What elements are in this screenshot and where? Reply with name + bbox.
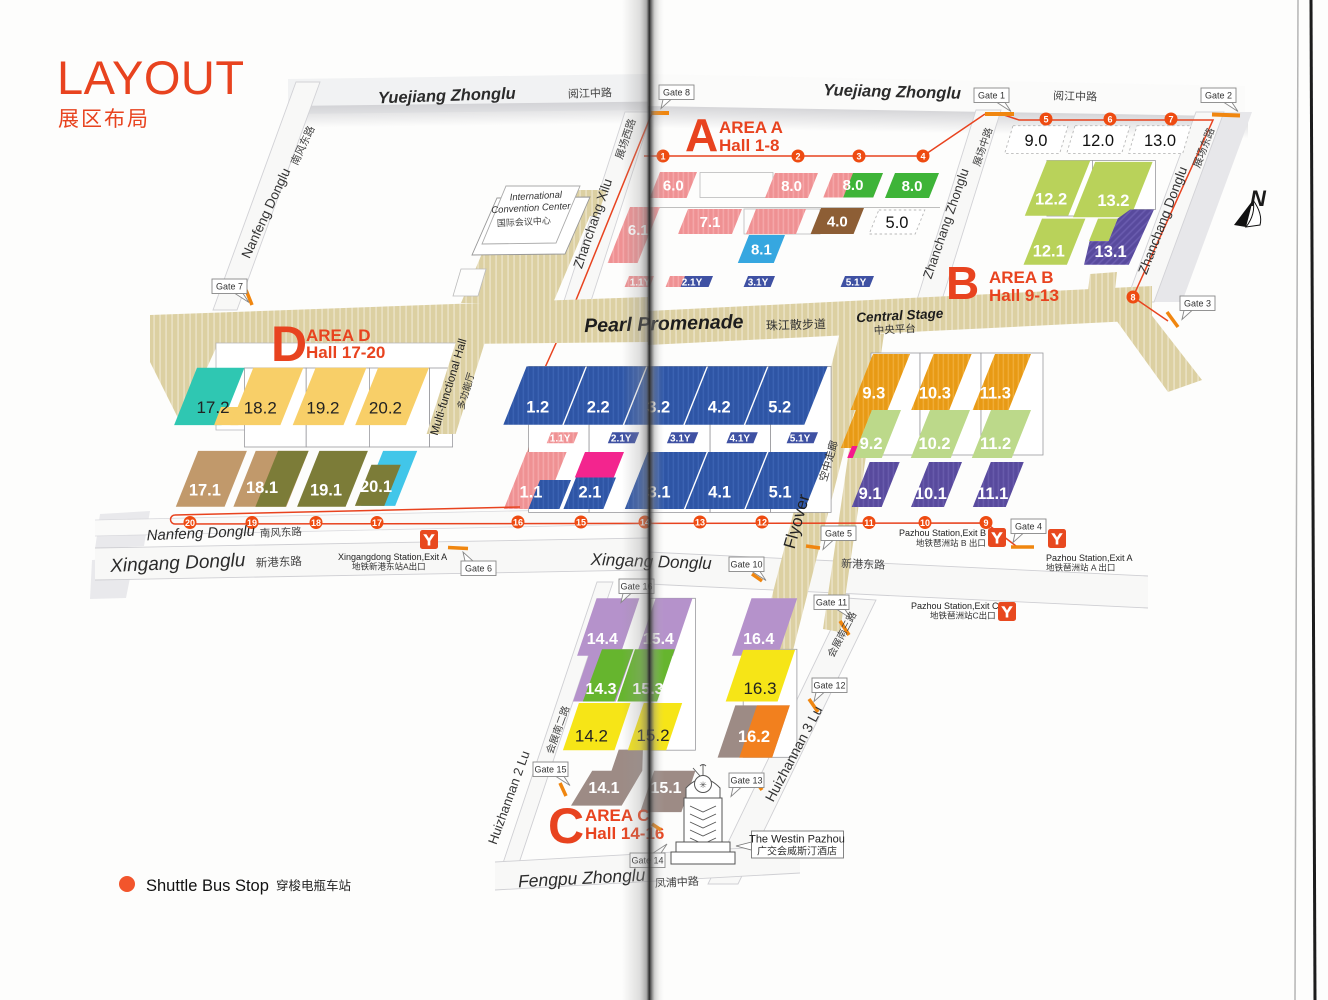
svg-text:13: 13 <box>695 517 705 527</box>
svg-text:16.2: 16.2 <box>738 728 770 746</box>
svg-text:Gate 1: Gate 1 <box>978 91 1005 101</box>
svg-text:地铁琶洲站C出口: 地铁琶洲站C出口 <box>930 611 996 621</box>
svg-text:4.1: 4.1 <box>708 483 731 501</box>
svg-text:Pazhou Station,Exit B: Pazhou Station,Exit B <box>899 528 986 538</box>
svg-text:5.1Y: 5.1Y <box>846 278 867 289</box>
svg-text:10: 10 <box>920 518 930 528</box>
svg-text:14.3: 14.3 <box>585 681 616 698</box>
svg-text:广交会威斯汀酒店: 广交会威斯汀酒店 <box>757 845 837 858</box>
svg-text:16.3: 16.3 <box>743 679 776 698</box>
svg-text:8: 8 <box>1130 292 1135 302</box>
svg-text:Gate 6: Gate 6 <box>465 564 492 574</box>
svg-text:14.4: 14.4 <box>587 631 618 648</box>
svg-text:Yuejiang Zhonglu: Yuejiang Zhonglu <box>823 81 961 103</box>
svg-text:18.1: 18.1 <box>246 479 278 497</box>
svg-text:C: C <box>548 798 584 854</box>
svg-text:LAYOUT: LAYOUT <box>57 51 245 104</box>
svg-text:Hall 9-13: Hall 9-13 <box>989 286 1059 305</box>
svg-text:Xingangdong Station,Exit A: Xingangdong Station,Exit A <box>338 552 447 562</box>
svg-text:8.0: 8.0 <box>902 178 923 195</box>
svg-text:8.0: 8.0 <box>843 177 864 194</box>
svg-text:7: 7 <box>1168 114 1173 124</box>
svg-text:1.1Y: 1.1Y <box>550 434 571 445</box>
svg-text:2.1Y: 2.1Y <box>682 278 703 289</box>
svg-text:2.2: 2.2 <box>587 399 610 417</box>
svg-text:穿梭电瓶车站: 穿梭电瓶车站 <box>276 878 351 893</box>
svg-text:5: 5 <box>1043 114 1048 124</box>
svg-text:13.0: 13.0 <box>1144 132 1176 150</box>
svg-text:15: 15 <box>576 517 586 527</box>
svg-text:17.1: 17.1 <box>189 481 221 499</box>
svg-text:✳: ✳ <box>699 780 707 790</box>
svg-text:11.1: 11.1 <box>977 485 1008 503</box>
svg-text:13.1: 13.1 <box>1095 243 1127 261</box>
svg-text:Gate 8: Gate 8 <box>663 88 690 98</box>
svg-text:3: 3 <box>856 151 861 161</box>
svg-text:20.2: 20.2 <box>369 399 402 418</box>
svg-text:Gate 4: Gate 4 <box>1015 522 1042 532</box>
svg-text:8.0: 8.0 <box>781 178 802 195</box>
svg-text:17.2: 17.2 <box>196 398 229 417</box>
svg-text:9.3: 9.3 <box>862 385 885 403</box>
svg-text:19.1: 19.1 <box>310 481 342 499</box>
svg-text:9.2: 9.2 <box>860 435 883 453</box>
svg-text:地铁琶洲站 A 出口: 地铁琶洲站 A 出口 <box>1046 563 1115 573</box>
svg-text:Gate 3: Gate 3 <box>1184 299 1211 309</box>
svg-text:Gate 7: Gate 7 <box>216 282 243 292</box>
svg-text:1.2: 1.2 <box>526 399 549 417</box>
svg-text:4.2: 4.2 <box>708 399 731 417</box>
svg-text:Hall 1-8: Hall 1-8 <box>719 136 779 155</box>
svg-text:10.2: 10.2 <box>918 435 950 453</box>
svg-text:7.1: 7.1 <box>700 214 721 231</box>
svg-text:Gate 11: Gate 11 <box>816 598 847 608</box>
svg-text:Pazhou Station,Exit C: Pazhou Station,Exit C <box>911 601 999 611</box>
svg-text:14.2: 14.2 <box>575 727 608 746</box>
svg-text:3.1Y: 3.1Y <box>670 434 691 445</box>
svg-text:阅江中路: 阅江中路 <box>568 86 612 101</box>
svg-text:阅江中路: 阅江中路 <box>1053 89 1097 103</box>
svg-text:4: 4 <box>920 151 925 161</box>
svg-text:13.2: 13.2 <box>1097 192 1129 210</box>
svg-text:Gate 15: Gate 15 <box>534 765 566 775</box>
svg-text:19.2: 19.2 <box>306 399 339 418</box>
svg-text:南风东路: 南风东路 <box>260 525 303 540</box>
svg-text:Gate 10: Gate 10 <box>730 560 762 570</box>
svg-text:12: 12 <box>757 517 767 527</box>
svg-text:Pazhou Station,Exit A: Pazhou Station,Exit A <box>1046 553 1133 563</box>
svg-text:地铁琶洲站 B 出口: 地铁琶洲站 B 出口 <box>916 538 986 548</box>
svg-text:12.2: 12.2 <box>1035 191 1067 209</box>
svg-text:6.0: 6.0 <box>663 177 684 194</box>
svg-text:12.0: 12.0 <box>1082 132 1114 150</box>
svg-text:18.2: 18.2 <box>244 399 277 418</box>
svg-text:18: 18 <box>311 518 321 528</box>
svg-text:3.1Y: 3.1Y <box>748 278 769 289</box>
svg-text:Hall 17-20: Hall 17-20 <box>306 343 385 362</box>
svg-text:Gate 12: Gate 12 <box>813 681 845 691</box>
svg-text:14.1: 14.1 <box>588 780 619 797</box>
svg-text:珠江散步道: 珠江散步道 <box>766 316 826 333</box>
svg-text:展区布局: 展区布局 <box>58 108 150 131</box>
svg-text:2.1: 2.1 <box>579 484 602 502</box>
svg-text:The Westin Pazhou: The Westin Pazhou <box>749 834 845 846</box>
svg-text:地铁新港东站A出口: 地铁新港东站A出口 <box>352 562 426 572</box>
svg-text:12.1: 12.1 <box>1033 242 1065 260</box>
svg-text:16.4: 16.4 <box>743 631 774 648</box>
svg-text:AREA A: AREA A <box>719 118 783 137</box>
svg-text:16: 16 <box>513 517 523 527</box>
svg-text:5.2: 5.2 <box>768 399 791 417</box>
svg-text:5.1Y: 5.1Y <box>790 434 811 445</box>
svg-text:A: A <box>685 109 718 161</box>
svg-text:6: 6 <box>1107 114 1112 124</box>
svg-text:新港东路: 新港东路 <box>841 556 885 572</box>
svg-text:8.1: 8.1 <box>751 241 772 258</box>
svg-text:9: 9 <box>983 518 988 528</box>
svg-text:Gate 2: Gate 2 <box>1205 91 1232 101</box>
svg-text:4.1Y: 4.1Y <box>730 434 751 445</box>
svg-text:9.1: 9.1 <box>859 485 882 503</box>
svg-text:B: B <box>946 257 979 309</box>
svg-text:10.3: 10.3 <box>919 385 951 403</box>
svg-text:10.1: 10.1 <box>915 485 947 503</box>
svg-text:AREA B: AREA B <box>989 268 1054 287</box>
svg-text:4.0: 4.0 <box>827 213 848 230</box>
svg-text:11.3: 11.3 <box>980 385 1011 403</box>
svg-text:11: 11 <box>864 518 874 528</box>
svg-text:5.1: 5.1 <box>769 483 792 501</box>
svg-text:9.0: 9.0 <box>1025 132 1048 150</box>
svg-text:20.1: 20.1 <box>360 478 392 496</box>
svg-text:11.2: 11.2 <box>980 435 1011 453</box>
svg-text:Shuttle Bus Stop: Shuttle Bus Stop <box>146 877 269 895</box>
svg-text:Gate 13: Gate 13 <box>730 776 762 786</box>
svg-text:17: 17 <box>372 518 382 528</box>
svg-text:D: D <box>271 316 307 372</box>
svg-text:中央平台: 中央平台 <box>874 322 917 337</box>
svg-text:1.1: 1.1 <box>520 484 543 502</box>
svg-text:2: 2 <box>795 151 800 161</box>
svg-text:N: N <box>1250 186 1267 211</box>
svg-text:5.0: 5.0 <box>886 214 909 232</box>
svg-text:Gate 5: Gate 5 <box>825 529 852 539</box>
